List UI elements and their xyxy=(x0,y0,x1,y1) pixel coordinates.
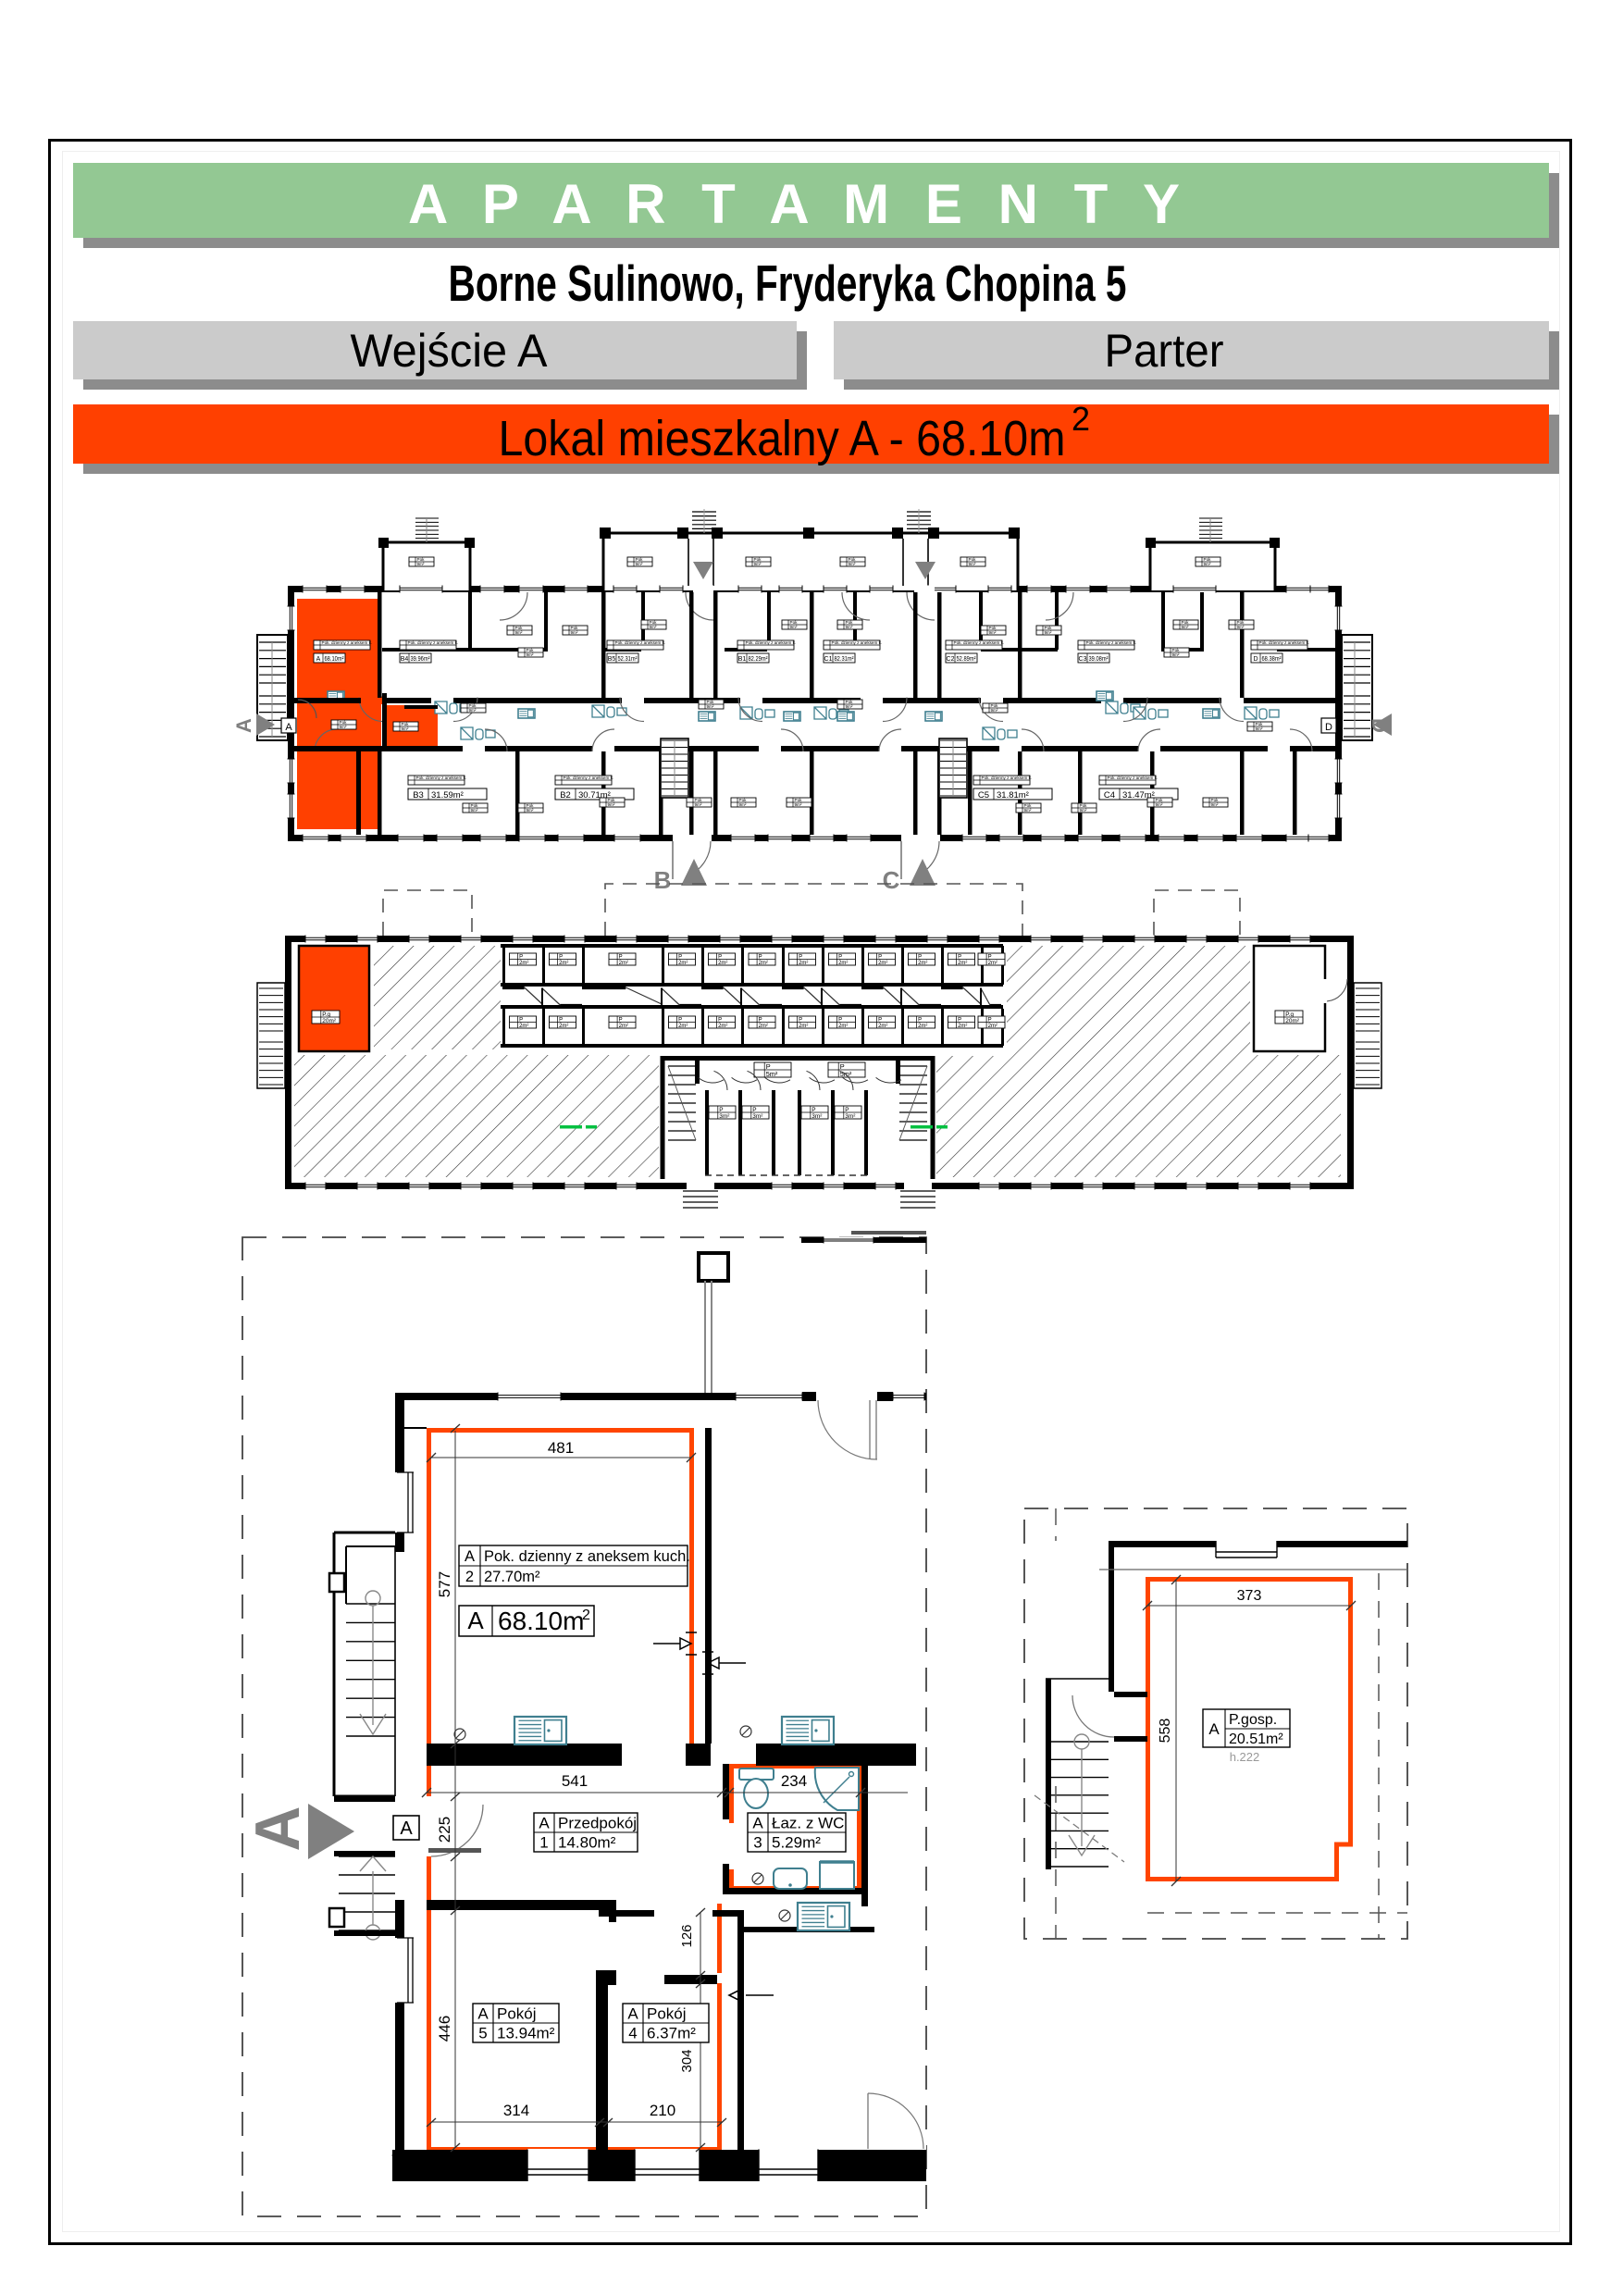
svg-text:Pok. dzienny z aneksem k.: Pok. dzienny z aneksem k. xyxy=(322,640,373,645)
svg-text:5m²: 5m² xyxy=(766,1070,778,1078)
svg-text:31.59m²: 31.59m² xyxy=(431,790,464,800)
svg-text:2m²: 2m² xyxy=(799,1024,808,1029)
svg-text:1: 1 xyxy=(539,1833,548,1851)
svg-text:P: P xyxy=(799,955,802,961)
svg-text:C2: C2 xyxy=(947,656,955,663)
svg-text:481: 481 xyxy=(548,1439,574,1457)
svg-text:2m²: 2m² xyxy=(619,961,628,966)
svg-text:C1: C1 xyxy=(824,656,833,663)
svg-text:2m²: 2m² xyxy=(559,1024,568,1029)
svg-text:Przedpokój: Przedpokój xyxy=(558,1814,637,1831)
svg-text:P: P xyxy=(519,1018,523,1024)
svg-text:68.10m²: 68.10m² xyxy=(325,656,345,663)
svg-text:9m²: 9m² xyxy=(969,562,976,566)
svg-text:2m²: 2m² xyxy=(918,961,927,966)
svg-text:2m²: 2m² xyxy=(838,1024,848,1029)
svg-text:82.31m²: 82.31m² xyxy=(835,656,855,663)
svg-text:Lokal mieszkalny A - 68.10m: Lokal mieszkalny A - 68.10m xyxy=(499,411,1066,466)
svg-text:A: A xyxy=(477,2004,489,2022)
svg-text:2: 2 xyxy=(582,1607,590,1623)
svg-text:B2: B2 xyxy=(560,790,571,800)
svg-text:2m²: 2m² xyxy=(559,961,568,966)
svg-text:9m²: 9m² xyxy=(1172,652,1180,657)
svg-text:A: A xyxy=(242,1806,313,1851)
svg-text:2m²: 2m² xyxy=(958,1024,967,1029)
svg-text:9m²: 9m² xyxy=(1211,802,1219,807)
svg-text:9m²: 9m² xyxy=(527,808,534,813)
svg-text:2m²: 2m² xyxy=(759,961,768,966)
svg-text:3m²: 3m² xyxy=(719,1113,730,1120)
svg-text:9m²: 9m² xyxy=(1204,562,1211,566)
svg-text:A: A xyxy=(539,1814,550,1831)
svg-text:2m²: 2m² xyxy=(799,961,808,966)
svg-text:3m²: 3m² xyxy=(752,1113,763,1120)
svg-text:2m²: 2m² xyxy=(988,1024,997,1029)
svg-text:2m²: 2m² xyxy=(988,961,997,966)
svg-text:31.81m²: 31.81m² xyxy=(997,790,1029,800)
svg-text:P: P xyxy=(559,1018,563,1024)
svg-text:234: 234 xyxy=(781,1772,807,1790)
svg-text:A: A xyxy=(752,1814,763,1831)
svg-text:2m²: 2m² xyxy=(718,961,727,966)
svg-text:3m²: 3m² xyxy=(811,1113,823,1120)
svg-text:Pok. dzienny z aneksem k.: Pok. dzienny z aneksem k. xyxy=(1108,776,1158,780)
svg-text:9m²: 9m² xyxy=(527,652,534,657)
svg-text:5: 5 xyxy=(478,2024,487,2042)
svg-text:Łaz. z WC: Łaz. z WC xyxy=(772,1814,844,1831)
svg-text:P: P xyxy=(878,1018,882,1024)
svg-text:Pok. dzienny z aneksem kuch.: Pok. dzienny z aneksem kuch. xyxy=(484,1548,690,1565)
svg-text:5.29m²: 5.29m² xyxy=(772,1833,821,1851)
svg-text:2: 2 xyxy=(465,1569,474,1585)
svg-text:20m²: 20m² xyxy=(1285,1018,1300,1024)
svg-text:225: 225 xyxy=(436,1817,453,1843)
svg-text:2m²: 2m² xyxy=(759,1024,768,1029)
svg-text:D: D xyxy=(1253,656,1258,663)
svg-text:9m²: 9m² xyxy=(402,726,409,731)
svg-text:P: P xyxy=(759,1018,762,1024)
svg-text:Pok. dzienny z aneksem k.: Pok. dzienny z aneksem k. xyxy=(416,776,467,780)
svg-text:P: P xyxy=(799,1018,802,1024)
svg-text:C4: C4 xyxy=(1104,790,1115,800)
svg-text:3m²: 3m² xyxy=(845,1113,856,1120)
svg-text:Pok. dzienny z aneksem k.: Pok. dzienny z aneksem k. xyxy=(1086,640,1137,645)
svg-text:A: A xyxy=(232,718,255,733)
svg-text:20.51m²: 20.51m² xyxy=(1229,1731,1283,1747)
svg-text:52.31m²: 52.31m² xyxy=(618,656,638,663)
svg-text:9m²: 9m² xyxy=(989,630,997,635)
svg-text:Wejście A: Wejście A xyxy=(351,325,549,377)
svg-text:2m²: 2m² xyxy=(678,961,688,966)
svg-text:A: A xyxy=(627,2004,638,2022)
svg-text:A: A xyxy=(465,1548,475,1565)
svg-text:P: P xyxy=(678,955,682,961)
svg-text:39.96m²: 39.96m² xyxy=(411,656,431,663)
svg-text:B1: B1 xyxy=(738,656,747,663)
svg-text:P.gosp.: P.gosp. xyxy=(1229,1712,1277,1728)
svg-text:P: P xyxy=(619,1018,623,1024)
svg-text:2m²: 2m² xyxy=(918,1024,927,1029)
svg-text:9m²: 9m² xyxy=(1256,726,1263,731)
svg-text:P: P xyxy=(878,955,882,961)
svg-text:9m²: 9m² xyxy=(515,630,523,635)
svg-text:27.70m²: 27.70m² xyxy=(484,1569,540,1585)
svg-text:Pok. dzienny z aneksem k.: Pok. dzienny z aneksem k. xyxy=(615,640,666,645)
svg-text:20m²: 20m² xyxy=(322,1018,337,1024)
svg-text:9m²: 9m² xyxy=(1182,625,1189,629)
svg-text:P: P xyxy=(519,955,523,961)
svg-text:52.89m²: 52.89m² xyxy=(957,656,977,663)
svg-text:68.10m: 68.10m xyxy=(498,1607,584,1635)
svg-text:P: P xyxy=(678,1018,682,1024)
svg-text:Pokój: Pokój xyxy=(647,2004,687,2022)
svg-text:D: D xyxy=(1368,718,1391,733)
svg-text:B: B xyxy=(654,866,672,894)
svg-text:9m²: 9m² xyxy=(1080,808,1087,813)
svg-text:9m²: 9m² xyxy=(636,562,643,566)
svg-text:Pok. dzienny z aneksem k.: Pok. dzienny z aneksem k. xyxy=(564,776,614,780)
svg-text:B4: B4 xyxy=(401,656,409,663)
svg-text:314: 314 xyxy=(503,2102,529,2119)
svg-text:Pok. dzienny z aneksem k.: Pok. dzienny z aneksem k. xyxy=(954,640,1005,645)
svg-text:2: 2 xyxy=(1072,400,1090,438)
svg-text:2m²: 2m² xyxy=(619,1024,628,1029)
svg-text:P: P xyxy=(838,955,842,961)
svg-text:9m²: 9m² xyxy=(469,708,477,713)
svg-text:A: A xyxy=(285,722,292,733)
svg-text:2m²: 2m² xyxy=(878,961,887,966)
svg-text:A: A xyxy=(400,1818,413,1839)
svg-text:9m²: 9m² xyxy=(695,802,702,807)
svg-text:P: P xyxy=(619,955,623,961)
svg-text:558: 558 xyxy=(1158,1719,1173,1744)
svg-text:A: A xyxy=(1208,1720,1220,1738)
svg-text:P: P xyxy=(958,955,961,961)
svg-text:2m²: 2m² xyxy=(519,1024,528,1029)
svg-text:P: P xyxy=(838,1018,842,1024)
svg-text:5m²: 5m² xyxy=(840,1070,852,1078)
svg-text:Borne Sulinowo, Fryderyka Chop: Borne Sulinowo, Fryderyka Chopina 5 xyxy=(449,254,1127,312)
svg-text:39.08m²: 39.08m² xyxy=(1089,656,1109,663)
svg-text:2m²: 2m² xyxy=(718,1024,727,1029)
svg-text:9m²: 9m² xyxy=(608,802,615,807)
svg-text:2m²: 2m² xyxy=(878,1024,887,1029)
svg-text:2m²: 2m² xyxy=(838,961,848,966)
svg-text:9m²: 9m² xyxy=(795,802,802,807)
svg-text:P: P xyxy=(718,1018,722,1024)
svg-text:3: 3 xyxy=(753,1833,762,1851)
svg-text:9m²: 9m² xyxy=(1237,625,1245,629)
svg-text:9m²: 9m² xyxy=(790,625,798,629)
svg-text:P: P xyxy=(988,1018,992,1024)
svg-text:B3: B3 xyxy=(413,790,424,800)
svg-text:210: 210 xyxy=(650,2102,675,2119)
svg-text:A: A xyxy=(467,1607,484,1634)
svg-text:4: 4 xyxy=(628,2024,637,2042)
svg-text:P: P xyxy=(988,955,992,961)
svg-text:373: 373 xyxy=(1237,1588,1262,1604)
svg-text:9m²: 9m² xyxy=(707,704,714,709)
svg-text:P: P xyxy=(958,1018,961,1024)
svg-text:446: 446 xyxy=(436,2016,453,2042)
svg-text:P: P xyxy=(718,955,722,961)
svg-text:B5: B5 xyxy=(608,656,616,663)
svg-text:9m²: 9m² xyxy=(417,562,425,566)
svg-text:Pok. dzienny z aneksem k.: Pok. dzienny z aneksem k. xyxy=(746,640,797,645)
svg-text:126: 126 xyxy=(679,1924,695,1947)
svg-text:9m²: 9m² xyxy=(650,625,657,629)
svg-text:577: 577 xyxy=(436,1571,453,1597)
svg-text:9m²: 9m² xyxy=(846,704,853,709)
svg-text:6.37m²: 6.37m² xyxy=(647,2024,696,2042)
svg-text:541: 541 xyxy=(562,1772,588,1790)
svg-text:Pok. dzienny z aneksem k.: Pok. dzienny z aneksem k. xyxy=(832,640,883,645)
svg-text:9m²: 9m² xyxy=(846,625,853,629)
svg-text:Pok. dzienny z aneksem k.: Pok. dzienny z aneksem k. xyxy=(1259,640,1310,645)
svg-text:Pok. dzienny z aneksem k.: Pok. dzienny z aneksem k. xyxy=(408,640,459,645)
svg-text:9m²: 9m² xyxy=(754,562,762,566)
svg-text:9m²: 9m² xyxy=(571,630,578,635)
svg-text:2m²: 2m² xyxy=(519,961,528,966)
svg-text:A: A xyxy=(316,656,321,663)
svg-text:82.29m²: 82.29m² xyxy=(749,656,769,663)
svg-text:304: 304 xyxy=(679,2049,695,2072)
svg-text:P: P xyxy=(918,1018,922,1024)
svg-text:P: P xyxy=(559,955,563,961)
svg-text:9m²: 9m² xyxy=(1045,630,1052,635)
svg-text:P: P xyxy=(759,955,762,961)
svg-text:C3: C3 xyxy=(1079,656,1087,663)
svg-text:Pok. dzienny z aneksem k.: Pok. dzienny z aneksem k. xyxy=(982,776,1033,780)
svg-text:14.80m²: 14.80m² xyxy=(558,1833,616,1851)
svg-text:2m²: 2m² xyxy=(678,1024,688,1029)
svg-text:2m²: 2m² xyxy=(958,961,967,966)
svg-text:9m²: 9m² xyxy=(991,708,998,713)
svg-text:9m²: 9m² xyxy=(1024,808,1032,813)
svg-text:9m²: 9m² xyxy=(471,808,478,813)
svg-text:9m²: 9m² xyxy=(739,802,747,807)
svg-text:Pokój: Pokój xyxy=(497,2004,537,2022)
svg-text:9m²: 9m² xyxy=(340,725,347,729)
svg-text:68.38m²: 68.38m² xyxy=(1262,656,1282,663)
svg-text:h.222: h.222 xyxy=(1230,1750,1260,1764)
svg-text:C: C xyxy=(883,866,900,894)
svg-text:P: P xyxy=(918,955,922,961)
svg-text:13.94m²: 13.94m² xyxy=(497,2024,555,2042)
svg-text:9m²: 9m² xyxy=(849,562,856,566)
svg-text:A P A R T A M E N T Y: A P A R T A M E N T Y xyxy=(408,173,1180,235)
svg-text:D: D xyxy=(1325,722,1332,733)
svg-text:Parter: Parter xyxy=(1105,325,1224,377)
svg-text:C5: C5 xyxy=(978,790,989,800)
svg-text:9m²: 9m² xyxy=(1156,802,1163,807)
